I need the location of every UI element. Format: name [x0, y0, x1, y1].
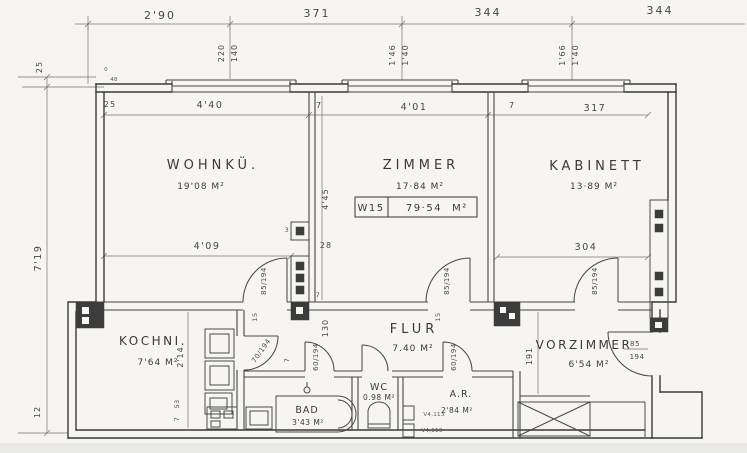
room-area-bad: 3'43 M²: [292, 418, 324, 427]
scan-edge-strip: [0, 443, 747, 453]
door-label-kabinett: 85/194: [591, 267, 599, 295]
dim-mid-304: 304: [575, 242, 598, 253]
vent-note-2: V4,113: [421, 428, 443, 434]
dim-mid-53: 53: [173, 399, 181, 408]
door-label-ar: 60/194: [450, 343, 458, 371]
door-label-wohnku: 85/194: [260, 267, 268, 295]
dim-win2-140: 1'40: [401, 44, 410, 65]
door-label-bad: 60/194: [312, 343, 320, 371]
dim-mid-15b: 15: [434, 312, 442, 321]
dim-win3-166: 1'66: [558, 44, 567, 65]
dim-inner-401: 4'01: [401, 102, 428, 113]
room-area-ar: 2'84 M²: [441, 406, 473, 415]
dim-mid-409: 4'09: [194, 241, 221, 252]
door-label-entrance-den: 194: [630, 353, 645, 361]
floorplan-page: W15 79·54 M² WOHNKÜ. 19'08 M² ZIMMER 17·…: [0, 0, 747, 453]
unit-area-suffix: M²: [452, 203, 468, 214]
vent-note-1: V4,113: [423, 412, 445, 418]
dim-mid-7b: 7: [283, 358, 291, 363]
dim-top-344b: 344: [647, 4, 674, 17]
dim-mid-3: 3: [285, 226, 290, 234]
room-area-flur: 7.40 M²: [392, 344, 433, 354]
dim-mid-191: 191: [525, 347, 534, 365]
dim-left-12: 12: [33, 406, 42, 418]
room-area-vorzimmer: 6'54 M²: [569, 360, 610, 370]
room-area-kabinett: 13·89 M²: [570, 182, 618, 192]
pillar-kochni: [76, 302, 104, 328]
dim-inner-25: 25: [104, 100, 116, 109]
dim-mid-7c: 7: [173, 417, 181, 422]
dim-win2-146: 1'46: [388, 44, 397, 65]
dim-top-290: 2'90: [144, 9, 176, 22]
dim-mid-15a: 15: [251, 312, 259, 321]
dim-inner-7b: 7: [509, 101, 515, 110]
room-area-wc: 0.98 M²: [363, 393, 395, 402]
room-label-ar: A.R.: [450, 389, 473, 400]
dim-mid-7a: 7: [316, 291, 321, 299]
room-label-wohnku: WOHNKÜ.: [167, 156, 259, 173]
room-label-bad: BAD: [295, 405, 318, 416]
room-label-kabinett: KABINETT: [549, 159, 645, 174]
room-area-zimmer: 17·84 M²: [396, 182, 444, 192]
door-label-entrance-num: 85: [630, 340, 640, 348]
unit-code: W15: [357, 203, 384, 214]
floor-plan-svg: W15 79·54 M² WOHNKÜ. 19'08 M² ZIMMER 17·…: [0, 0, 747, 453]
room-label-wc: WC: [370, 382, 388, 393]
room-label-vorzimmer: VORZIMMER: [536, 338, 633, 352]
dim-mid-445: 4'45: [321, 188, 330, 209]
room-area-kochni: 7'64 M²: [138, 358, 179, 368]
unit-area: 79·54: [406, 203, 442, 214]
dim-mid-48: 48: [110, 77, 118, 83]
door-label-zimmer: 85/194: [443, 267, 451, 295]
dim-mid-28: 28: [320, 241, 332, 250]
dim-win1-220: 220: [217, 44, 226, 62]
room-label-flur: FLUR: [390, 322, 439, 337]
room-area-wohnku: 19'08 M²: [177, 182, 225, 192]
dim-mid-214: 2'14: [176, 346, 185, 367]
dim-inner-7a: 7: [316, 101, 322, 110]
room-label-kochni: KOCHNI.: [119, 334, 187, 348]
dim-left-25: 25: [35, 61, 44, 73]
dim-win1-140: 140: [230, 44, 239, 62]
room-label-zimmer: ZIMMER: [383, 158, 459, 173]
dim-mid-130: 130: [321, 319, 330, 337]
pillar-flur-right: [494, 302, 520, 326]
dim-win3-140: 1'40: [571, 44, 580, 65]
dim-top-371: 371: [304, 7, 331, 20]
dim-mid-0: 0: [104, 67, 108, 73]
dim-top-344a: 344: [475, 6, 502, 19]
dim-left-719: 7'19: [33, 245, 44, 272]
dim-inner-317: 317: [584, 103, 607, 114]
dim-inner-440: 4'40: [197, 100, 224, 111]
